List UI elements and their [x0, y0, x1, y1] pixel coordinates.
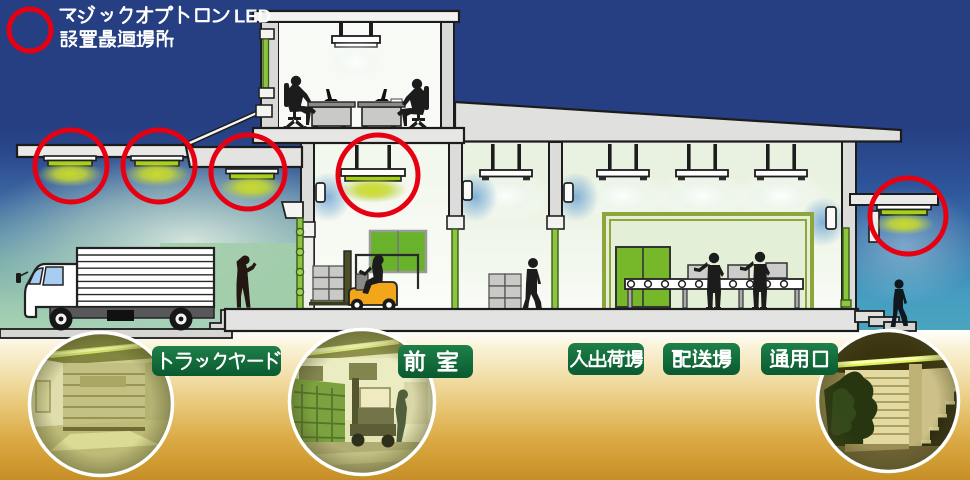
- svg-text:LED: LED: [234, 6, 271, 27]
